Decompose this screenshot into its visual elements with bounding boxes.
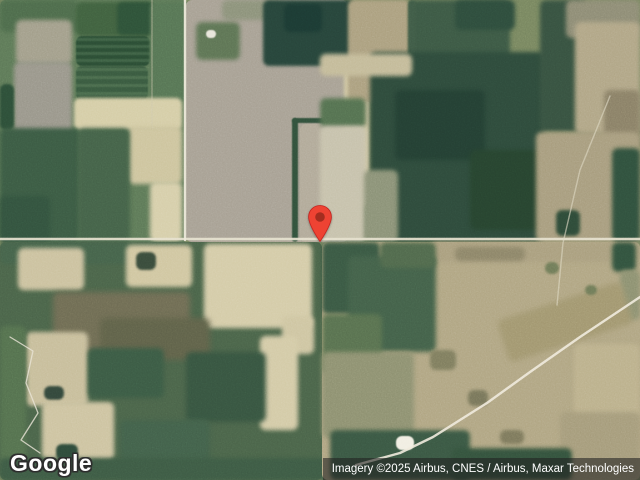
terrain-patch (128, 126, 182, 184)
google-logo[interactable]: Google (10, 450, 92, 477)
terrain-patch (76, 66, 148, 100)
terrain-patch (284, 4, 322, 32)
terrain-patch (574, 344, 640, 418)
terrain-patch (88, 348, 164, 398)
terrain-patch (16, 20, 72, 64)
terrain-patch (364, 170, 398, 242)
terrain-patch (196, 22, 240, 60)
attribution-text: Imagery ©2025 Airbus, CNES / Airbus, Max… (332, 463, 634, 475)
terrain-patch (380, 242, 436, 268)
terrain-patch (408, 0, 416, 56)
terrain-patch (150, 2, 186, 102)
terrain-patch (395, 90, 485, 160)
terrain-patch (292, 118, 298, 242)
terrain-patch (117, 2, 153, 35)
attribution-bar: Imagery ©2025 Airbus, CNES / Airbus, Max… (323, 458, 640, 480)
terrain-patch (320, 98, 366, 128)
terrain-patch (396, 436, 414, 450)
terrain-patch (0, 326, 26, 462)
terrain-patch (500, 430, 524, 444)
terrain-patch (322, 352, 414, 438)
terrain-patch (18, 248, 84, 290)
terrain-patch (430, 350, 456, 370)
terrain-patch (585, 285, 597, 295)
terrain-patch (545, 262, 559, 274)
satellite-map[interactable]: Google Imagery ©2025 Airbus, CNES / Airb… (0, 0, 640, 480)
terrain-patch (612, 148, 640, 242)
terrain-patch (76, 36, 150, 66)
terrain-patch (0, 84, 14, 130)
terrain-patch (455, 0, 515, 30)
terrain-patch (556, 210, 580, 236)
terrain-patch (0, 196, 50, 242)
map-pin-icon[interactable] (308, 205, 332, 242)
terrain-patch (136, 252, 156, 270)
terrain-patch (44, 386, 64, 400)
map-pin-dot (315, 212, 325, 222)
terrain-patch (78, 128, 130, 242)
terrain-patch (150, 182, 182, 242)
terrain-patch (455, 247, 525, 261)
terrain-patch (206, 30, 216, 38)
terrain-patch (612, 242, 636, 272)
map-pin-body (309, 206, 332, 242)
terrain-patch (468, 390, 488, 406)
terrain-patch (320, 54, 412, 76)
terrain-patch (186, 352, 266, 422)
